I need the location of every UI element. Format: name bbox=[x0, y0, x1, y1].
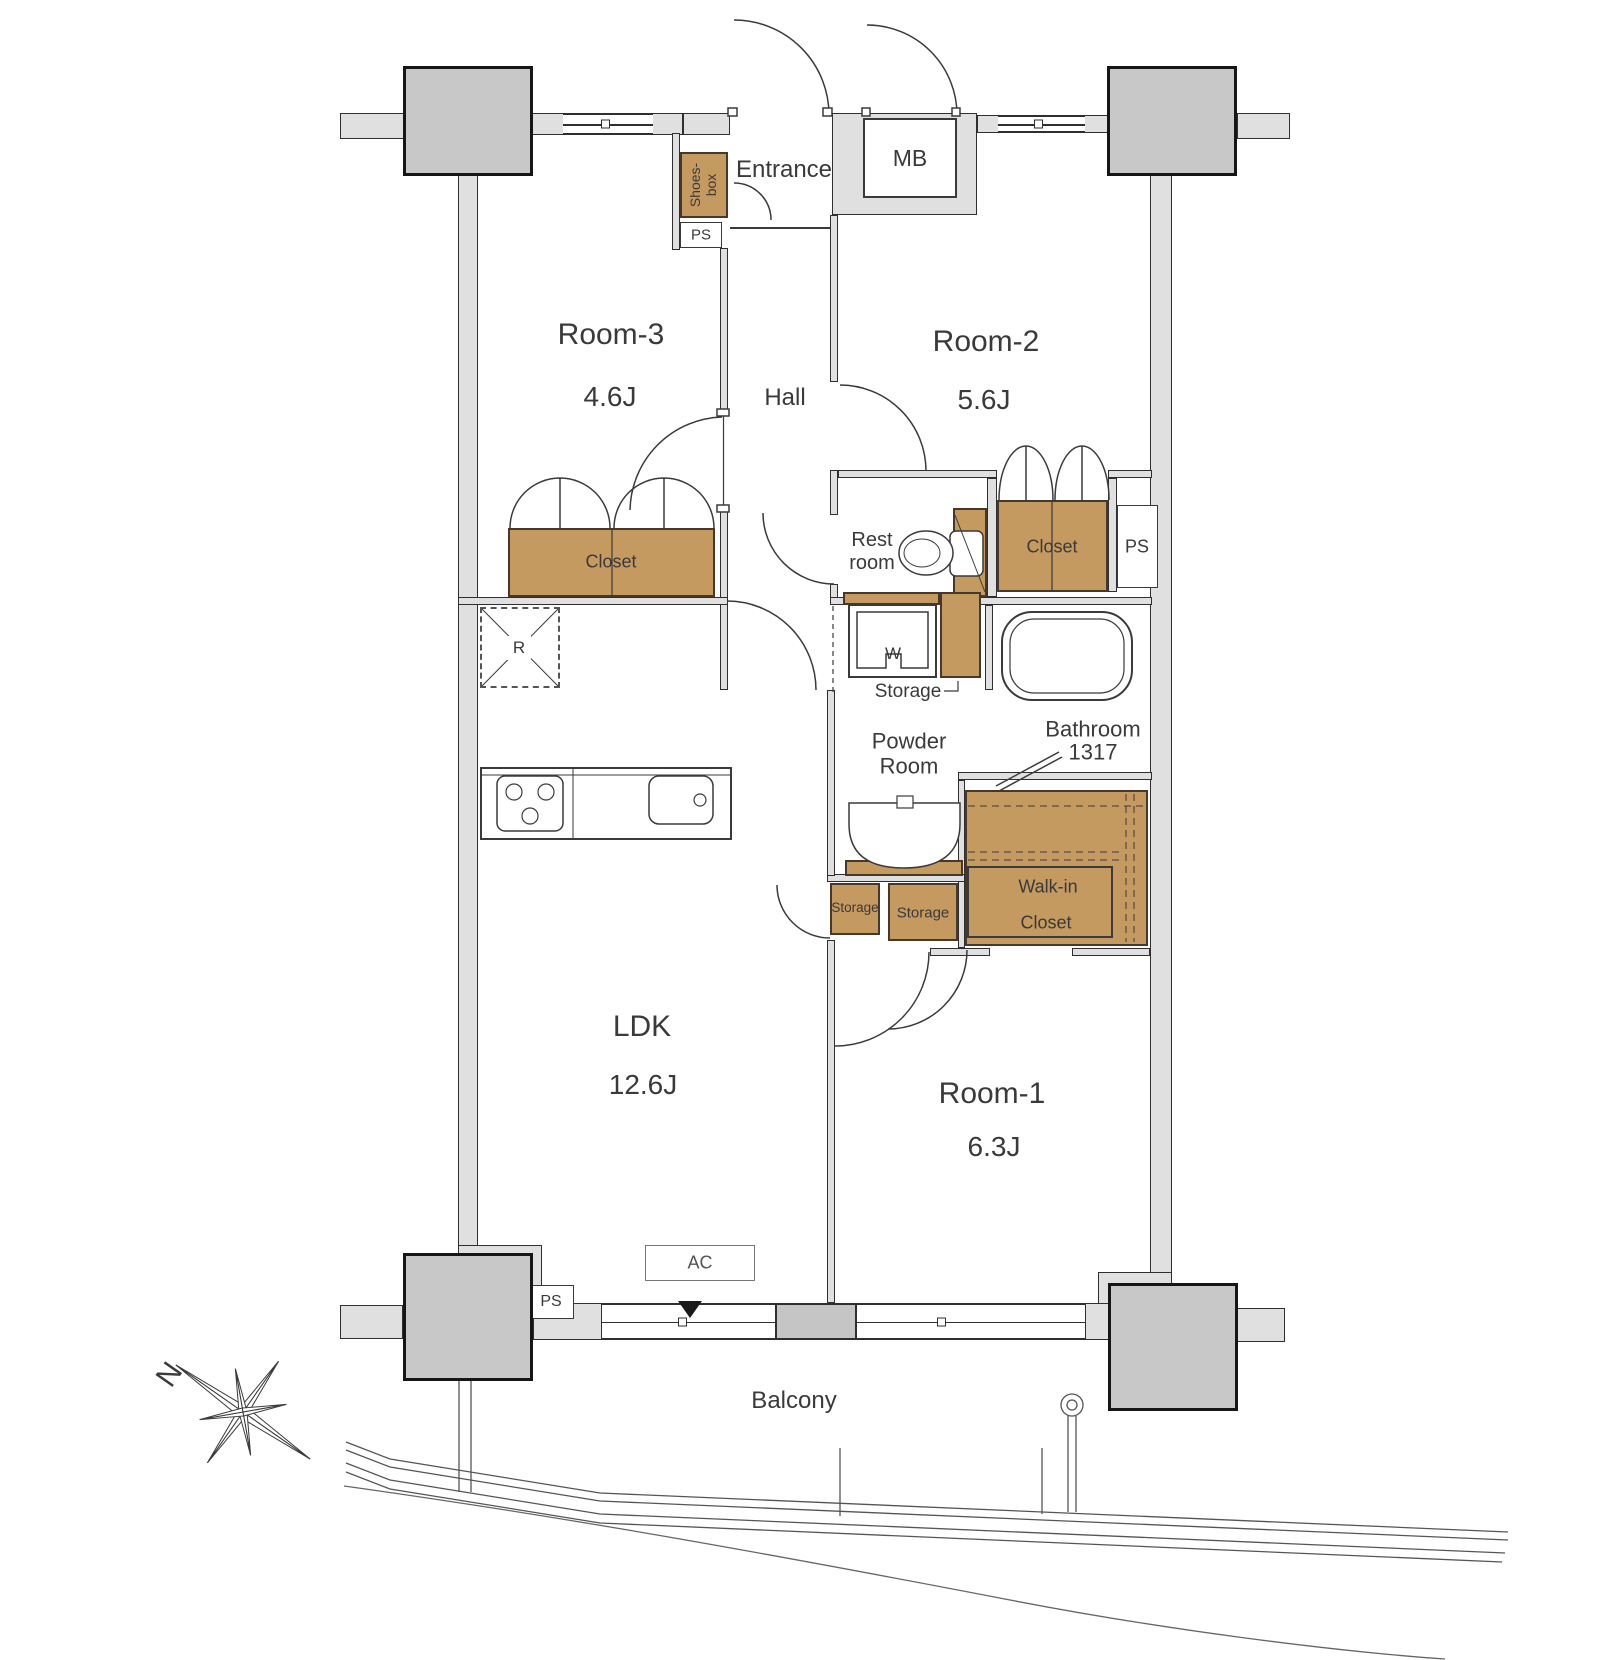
hinge bbox=[823, 108, 832, 116]
storage2-label: Storage bbox=[897, 904, 950, 921]
ac-label: AC bbox=[687, 1253, 712, 1274]
balcony-edge-line bbox=[346, 1450, 1508, 1540]
powder-room-label: Powder Room bbox=[872, 729, 947, 780]
wall-closet-ps bbox=[1108, 478, 1117, 592]
closet2-bifold bbox=[1055, 446, 1109, 500]
drain-circle bbox=[1061, 1394, 1083, 1416]
room2-name: Room-2 bbox=[933, 325, 1040, 360]
balcony-label: Balcony bbox=[751, 1387, 836, 1415]
wall-top-shoes bbox=[683, 113, 730, 135]
bathroom-name: Bathroom bbox=[1045, 716, 1140, 741]
powder-line1: Powder bbox=[872, 729, 947, 754]
wall-left bbox=[458, 133, 478, 1247]
restroom-line2: room bbox=[849, 552, 895, 574]
pillar-bottom-left bbox=[403, 1253, 533, 1381]
storage1-label: Storage bbox=[831, 900, 878, 916]
wic-door-arc bbox=[888, 950, 967, 1029]
entrance-inner-door-arc bbox=[734, 183, 771, 220]
toilet-bowl bbox=[899, 531, 953, 575]
bathroom-size: 1317 bbox=[1069, 739, 1118, 764]
wall-room1-top-b bbox=[1072, 948, 1150, 956]
entrance-label: Entrance bbox=[736, 156, 832, 184]
wall-powder-left bbox=[827, 690, 835, 876]
closet3-bifold bbox=[614, 478, 714, 528]
mb-door-arc bbox=[867, 25, 957, 115]
ps-mid-label: PS bbox=[1125, 537, 1149, 558]
vanity-basin bbox=[849, 803, 960, 868]
storage-by-washer bbox=[940, 592, 981, 678]
drain-circle-inner bbox=[1067, 1400, 1077, 1410]
window-room1-balcony bbox=[857, 1303, 1085, 1340]
restroom-label: Rest room bbox=[849, 529, 895, 575]
wall-ldk-room1 bbox=[827, 940, 835, 1303]
balcony-wall-post bbox=[775, 1303, 857, 1340]
wall-room2-rest bbox=[838, 470, 997, 478]
ldk-size: 12.6J bbox=[609, 1069, 678, 1101]
fridge-label: R bbox=[513, 638, 525, 658]
window-room2 bbox=[998, 115, 1085, 133]
pillar-top-right bbox=[1107, 66, 1237, 176]
wall-right bbox=[1150, 133, 1172, 1283]
window-latch bbox=[678, 1317, 687, 1326]
bathtub-inner bbox=[1010, 619, 1124, 693]
room1-name: Room-1 bbox=[939, 1077, 1046, 1112]
storage-label-connector bbox=[944, 681, 958, 691]
floor-plan: Entrance MB Shoes- box PS Room-3 4.6J Ha… bbox=[0, 0, 1600, 1660]
wall-room3-hall-upper bbox=[720, 248, 728, 415]
window-latch bbox=[601, 120, 610, 129]
wall-hall-room2-a bbox=[830, 215, 838, 382]
balcony-support-post bbox=[459, 1381, 471, 1492]
pillar-bottom-right bbox=[1108, 1283, 1238, 1411]
pillar-top-left bbox=[403, 66, 533, 176]
hall-ldk-door-arc bbox=[727, 601, 816, 690]
room1-size: 6.3J bbox=[968, 1131, 1021, 1163]
wic-line1-label: Walk-in bbox=[1018, 877, 1077, 898]
shoes-box-line2: box bbox=[703, 174, 719, 197]
room3-door-arc bbox=[630, 417, 722, 510]
powder-line2: Room bbox=[880, 754, 939, 779]
balcony-edge-line bbox=[346, 1463, 1505, 1553]
wall-room3-shoes bbox=[672, 133, 680, 250]
window-latch bbox=[937, 1317, 946, 1326]
restroom-cabinet bbox=[953, 508, 987, 597]
compass-icon bbox=[140, 1314, 346, 1510]
bathroom-door-leaf bbox=[996, 752, 1059, 786]
room3-size: 4.6J bbox=[584, 381, 637, 413]
window-ldk-balcony bbox=[602, 1303, 775, 1340]
closet3-bifold bbox=[510, 478, 610, 528]
storage-powder-label: Storage bbox=[875, 681, 942, 703]
wall-arm-tr bbox=[1237, 113, 1290, 139]
washer-label: W bbox=[885, 644, 901, 664]
room2-door-arc bbox=[840, 385, 926, 471]
drain-pipe bbox=[1068, 1416, 1076, 1512]
balcony-edge-line bbox=[346, 1472, 1502, 1562]
wall-room2-ps bbox=[1108, 470, 1152, 478]
ground-contour bbox=[344, 1486, 1445, 1659]
vanity-counter bbox=[845, 860, 963, 876]
room2-size: 5.6J bbox=[958, 384, 1011, 416]
entrance-door-arc bbox=[734, 20, 829, 115]
room3-name: Room-3 bbox=[558, 318, 665, 353]
balcony-edge-line bbox=[346, 1442, 1508, 1532]
wall-arm-tl bbox=[340, 113, 405, 139]
balcony-railing-post bbox=[840, 1448, 1042, 1516]
window-glass-line bbox=[857, 1322, 1085, 1324]
room1-door-arc bbox=[835, 952, 929, 1046]
window-room3 bbox=[563, 113, 653, 135]
ldk-powder-door-arc bbox=[777, 885, 830, 938]
shoes-box-label: Shoes- box bbox=[687, 163, 719, 207]
bathtub bbox=[1002, 612, 1132, 700]
ps-bottom-label: PS bbox=[540, 1293, 561, 1311]
wall-bath-bottom bbox=[958, 772, 1152, 780]
hall-label: Hall bbox=[764, 384, 805, 412]
closet2-bifold bbox=[999, 446, 1053, 500]
wall-arm-bl bbox=[340, 1305, 403, 1339]
shoes-box-line1: Shoes- bbox=[687, 163, 703, 207]
window-latch bbox=[1034, 120, 1043, 129]
ldk-name: LDK bbox=[613, 1010, 671, 1045]
mb-label: MB bbox=[893, 145, 928, 171]
compass-north-label: N bbox=[150, 1356, 191, 1394]
closet-room3-label: Closet bbox=[585, 552, 636, 573]
wall-bottom-stub-right bbox=[1085, 1303, 1110, 1340]
wic-line2-label: Closet bbox=[1020, 913, 1071, 934]
wall-bath-left bbox=[985, 605, 993, 690]
wall-closet3-bottom bbox=[458, 597, 728, 605]
closet-room2-label: Closet bbox=[1026, 537, 1077, 558]
restroom-door-arc bbox=[763, 513, 834, 584]
wall-rest-closet bbox=[987, 478, 997, 597]
ps-top-label: PS bbox=[691, 226, 711, 243]
wall-room1-top-a bbox=[930, 948, 990, 956]
wall-hall-room2-b bbox=[830, 470, 838, 515]
window-glass-line bbox=[602, 1322, 775, 1324]
kitchen-counter bbox=[480, 767, 732, 840]
toilet-bowl-inner bbox=[904, 539, 940, 567]
restroom-line1: Rest bbox=[851, 529, 892, 551]
vanity-faucet bbox=[897, 796, 913, 808]
washing-machine bbox=[848, 604, 937, 678]
